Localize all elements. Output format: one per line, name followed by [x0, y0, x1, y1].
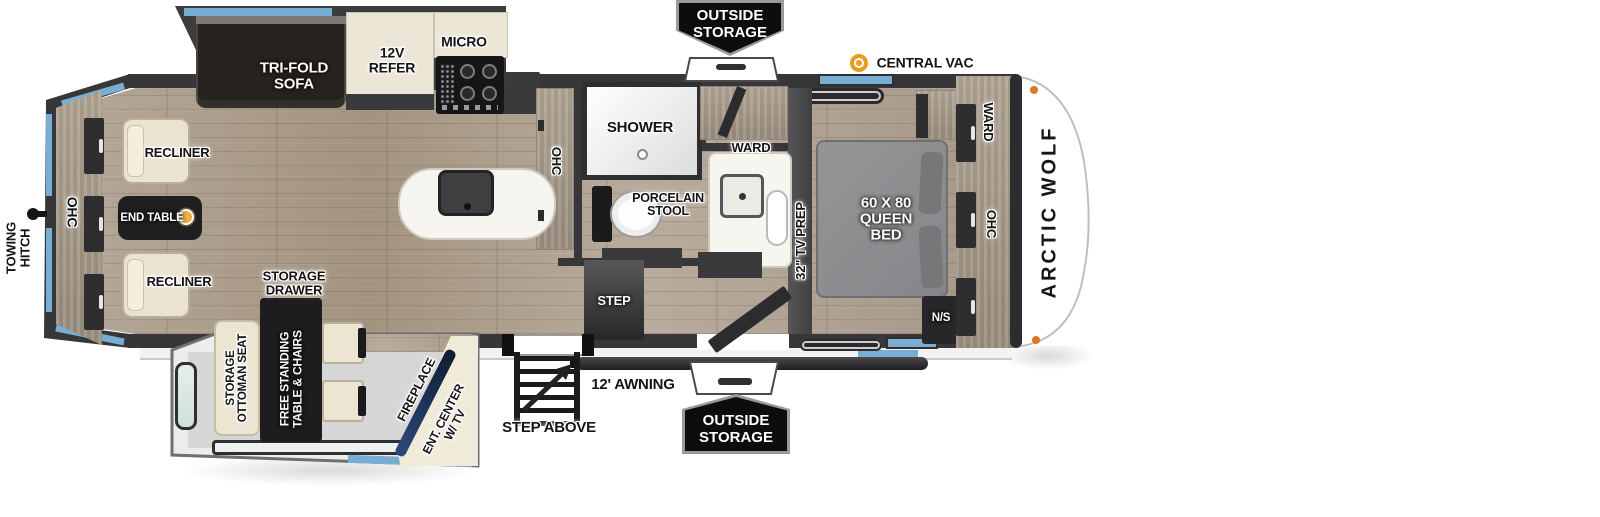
vanity-counter [708, 152, 792, 268]
burner-2 [482, 64, 497, 79]
vanity-faucet-icon [739, 193, 746, 200]
central-vac-dot [856, 60, 862, 66]
step-label: STEP [597, 294, 630, 308]
refer-counter-edge [346, 94, 434, 110]
marker-light-bottom-icon [1032, 336, 1040, 344]
queen-bed-label: 60 X 80QUEENBED [860, 195, 912, 242]
shower-drain-icon [637, 149, 648, 160]
stove-knobs [442, 105, 498, 110]
outside-storage-badge-bottom: OUTSIDE STORAGE [682, 394, 790, 454]
marker-light-top-icon [1030, 86, 1038, 94]
shower-label: SHOWER [607, 120, 673, 136]
towing-hitch-icon [27, 208, 39, 220]
ohc-rear-label: OHC [65, 197, 80, 228]
bedroom-window-top [818, 74, 894, 86]
ohc-kitchen-label: OHC [549, 147, 563, 175]
badge-bottom-line1: OUTSIDE [703, 412, 770, 429]
island-sink [438, 170, 494, 216]
stove-grate [440, 64, 454, 104]
burner-1 [460, 64, 475, 79]
burner-4 [482, 86, 497, 101]
rear-cabinet-door-2 [84, 196, 104, 252]
awning-bar [576, 357, 928, 370]
front-cabinet-door-3 [956, 278, 976, 336]
central-vac-icon [850, 54, 868, 72]
step-above-label: STEP ABOVE [502, 420, 596, 436]
tri-fold-sofa-label: TRI-FOLDSOFA [260, 60, 328, 92]
front-cabinet-door-2 [956, 192, 976, 248]
dinette-chair-2 [322, 380, 364, 422]
landing-post-left [502, 334, 514, 356]
hall-shelf-right [698, 252, 762, 278]
pillow-bottom [918, 225, 943, 288]
bath-left-wall [574, 88, 582, 266]
ward-front-label: WARD [981, 103, 995, 142]
tv-prep-label: 32" TV PREP [794, 202, 808, 280]
cap-shadow [1000, 346, 1095, 370]
faucet-icon [464, 203, 471, 210]
end-table-label: END TABLE [120, 212, 183, 224]
range-stove [436, 56, 504, 114]
nightstand-label: N/S [932, 312, 951, 324]
rear-cabinet-door-3 [84, 274, 104, 330]
ohc-front-label: OHC [984, 210, 998, 238]
roof-vent-top [800, 88, 884, 104]
floorplan-canvas: OUTSIDE STORAGE OUTSIDE STORAGE CENTRAL … [0, 0, 1600, 517]
badge-top-line1: OUTSIDE [697, 7, 764, 24]
slide-window-left [175, 362, 197, 430]
skirt-window [858, 350, 918, 357]
outside-storage-badge-top: OUTSIDE STORAGE [676, 0, 784, 56]
toilet-tank [592, 186, 612, 242]
porcelain-stool-label: PORCELAINSTOOL [632, 192, 704, 218]
nightstand-top-front [916, 94, 928, 138]
pantry-handle-1 [538, 120, 544, 131]
awning-label: 12' AWNING [591, 377, 675, 393]
recliner-bottom-label: RECLINER [147, 275, 212, 289]
badge-bottom-line2: STORAGE [699, 429, 773, 446]
brand-label: ARCTIC WOLF [1040, 126, 1061, 299]
vanity-sink [720, 174, 764, 218]
front-cabinet-door-1 [956, 104, 976, 162]
badge-top-line2: STORAGE [693, 24, 767, 41]
vanity-basin [766, 190, 788, 246]
pantry-handle-2 [538, 210, 544, 221]
refer-label: 12VREFER [369, 45, 415, 74]
stairs-rungs [514, 356, 580, 426]
ward-bath-label: WARD [732, 141, 771, 155]
storage-compartment-top-handle [716, 64, 746, 70]
central-vac-label: CENTRAL VAC [877, 56, 974, 71]
burner-3 [460, 86, 475, 101]
dinette-chair-1 [322, 322, 364, 364]
storage-compartment-bottom-handle [718, 378, 752, 385]
towing-hitch-bar [37, 211, 47, 217]
towing-hitch-label: TOWINGHITCH [4, 222, 31, 274]
roof-vent-bottom [800, 339, 882, 351]
micro-label: MICRO [441, 35, 487, 50]
recliner-top-label: RECLINER [145, 146, 210, 160]
pillow-top [918, 151, 943, 214]
rear-cabinet-door-1 [84, 118, 104, 174]
storage-ottoman-label: STORAGEOTTOMAN SEAT [225, 334, 249, 423]
landing-post-right [582, 334, 594, 356]
storage-drawer-label: STORAGEDRAWER [263, 269, 326, 296]
sofa-slide-window [184, 8, 332, 16]
free-standing-table-label: FREE STANDINGTABLE & CHAIRS [278, 330, 303, 428]
